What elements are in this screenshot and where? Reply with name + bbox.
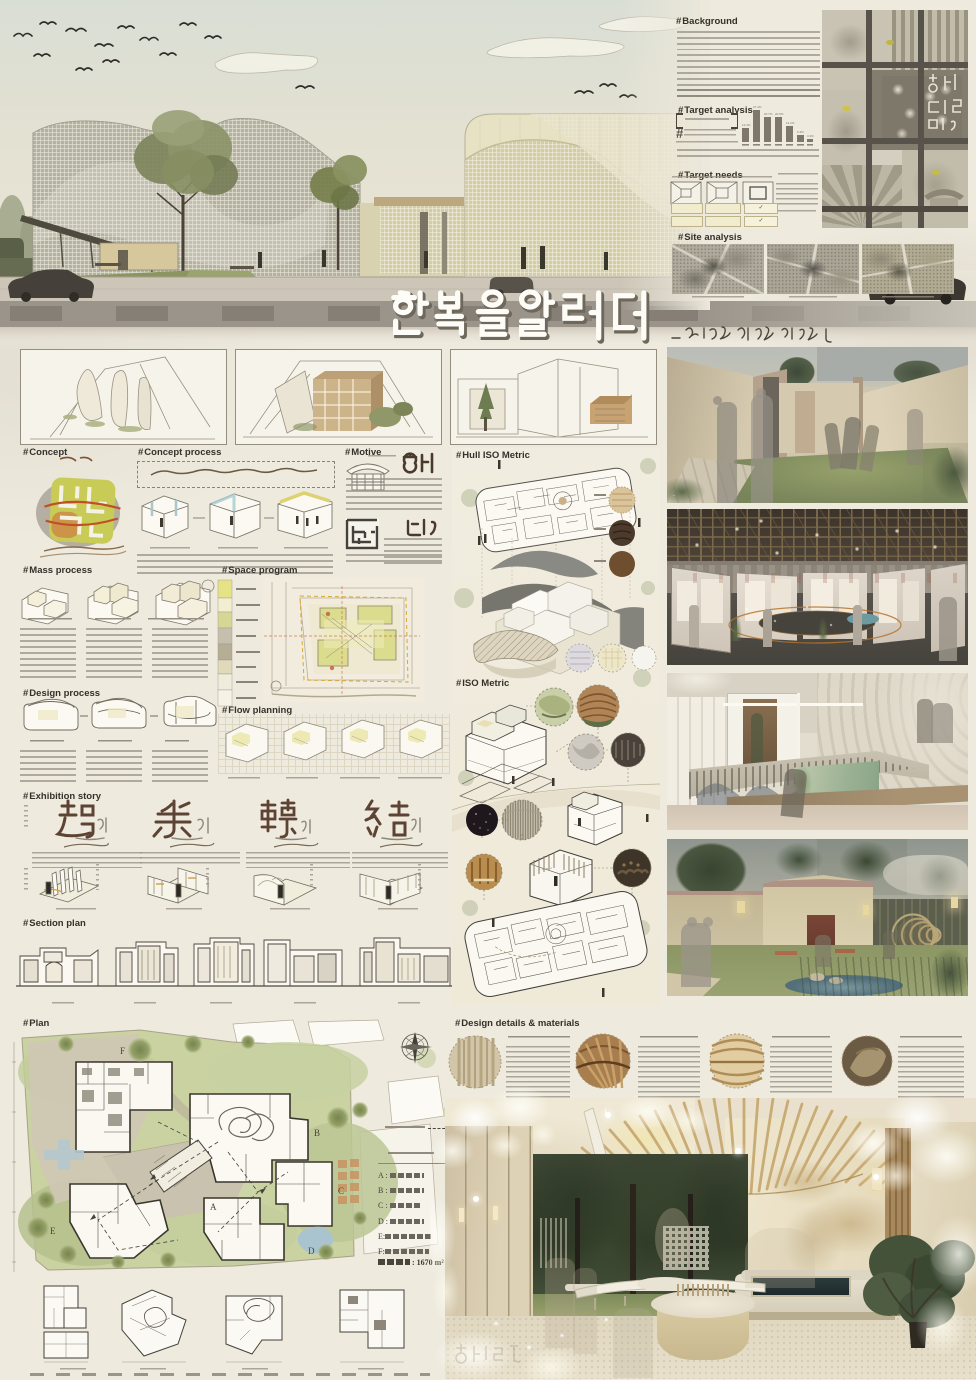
svg-text:12.3%: 12.3% — [742, 123, 751, 127]
svg-text:C: C — [338, 1186, 344, 1196]
svg-text:E: E — [50, 1226, 56, 1236]
svg-text:B: B — [314, 1128, 320, 1138]
svg-text:D: D — [308, 1246, 315, 1256]
svg-text:3.4%: 3.4% — [807, 134, 814, 138]
svg-text:F: F — [120, 1046, 125, 1056]
svg-text:27.4%: 27.4% — [753, 105, 762, 109]
svg-text:20.5%: 20.5% — [775, 112, 784, 116]
svg-text:14.2%: 14.2% — [786, 121, 795, 125]
svg-text:6.3%: 6.3% — [797, 130, 804, 134]
svg-text:20.7%: 20.7% — [764, 112, 773, 116]
svg-text:A: A — [210, 1202, 217, 1212]
